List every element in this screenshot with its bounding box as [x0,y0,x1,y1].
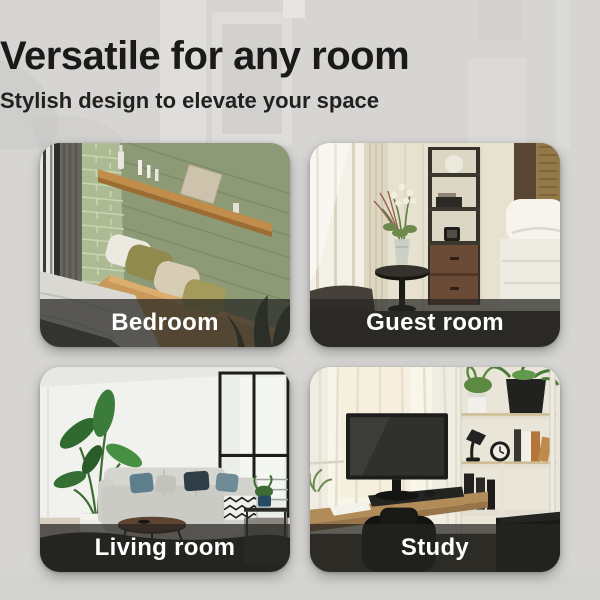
card-bedroom: Bedroom [40,143,290,347]
marketing-graphic: Versatile for any room Stylish design to… [0,0,600,600]
card-label: Guest room [366,309,504,337]
label-band-bedroom: Bedroom [40,299,290,347]
room-card-grid: Bedroom [40,143,560,572]
card-label: Living room [95,534,236,562]
card-guest-room: Guest room [310,143,560,347]
shelving-tower [428,147,482,305]
alarm-clock [490,441,510,461]
card-study: Study [310,367,560,572]
label-band-study: Study [310,524,560,572]
card-label: Bedroom [111,309,218,337]
label-band-guest-room: Guest room [310,299,560,347]
page-title: Versatile for any room [0,34,600,79]
page-subtitle: Stylish design to elevate your space [0,88,600,114]
card-label: Study [401,534,469,562]
label-band-living-room: Living room [40,524,290,572]
card-living-room: Living room [40,367,290,572]
